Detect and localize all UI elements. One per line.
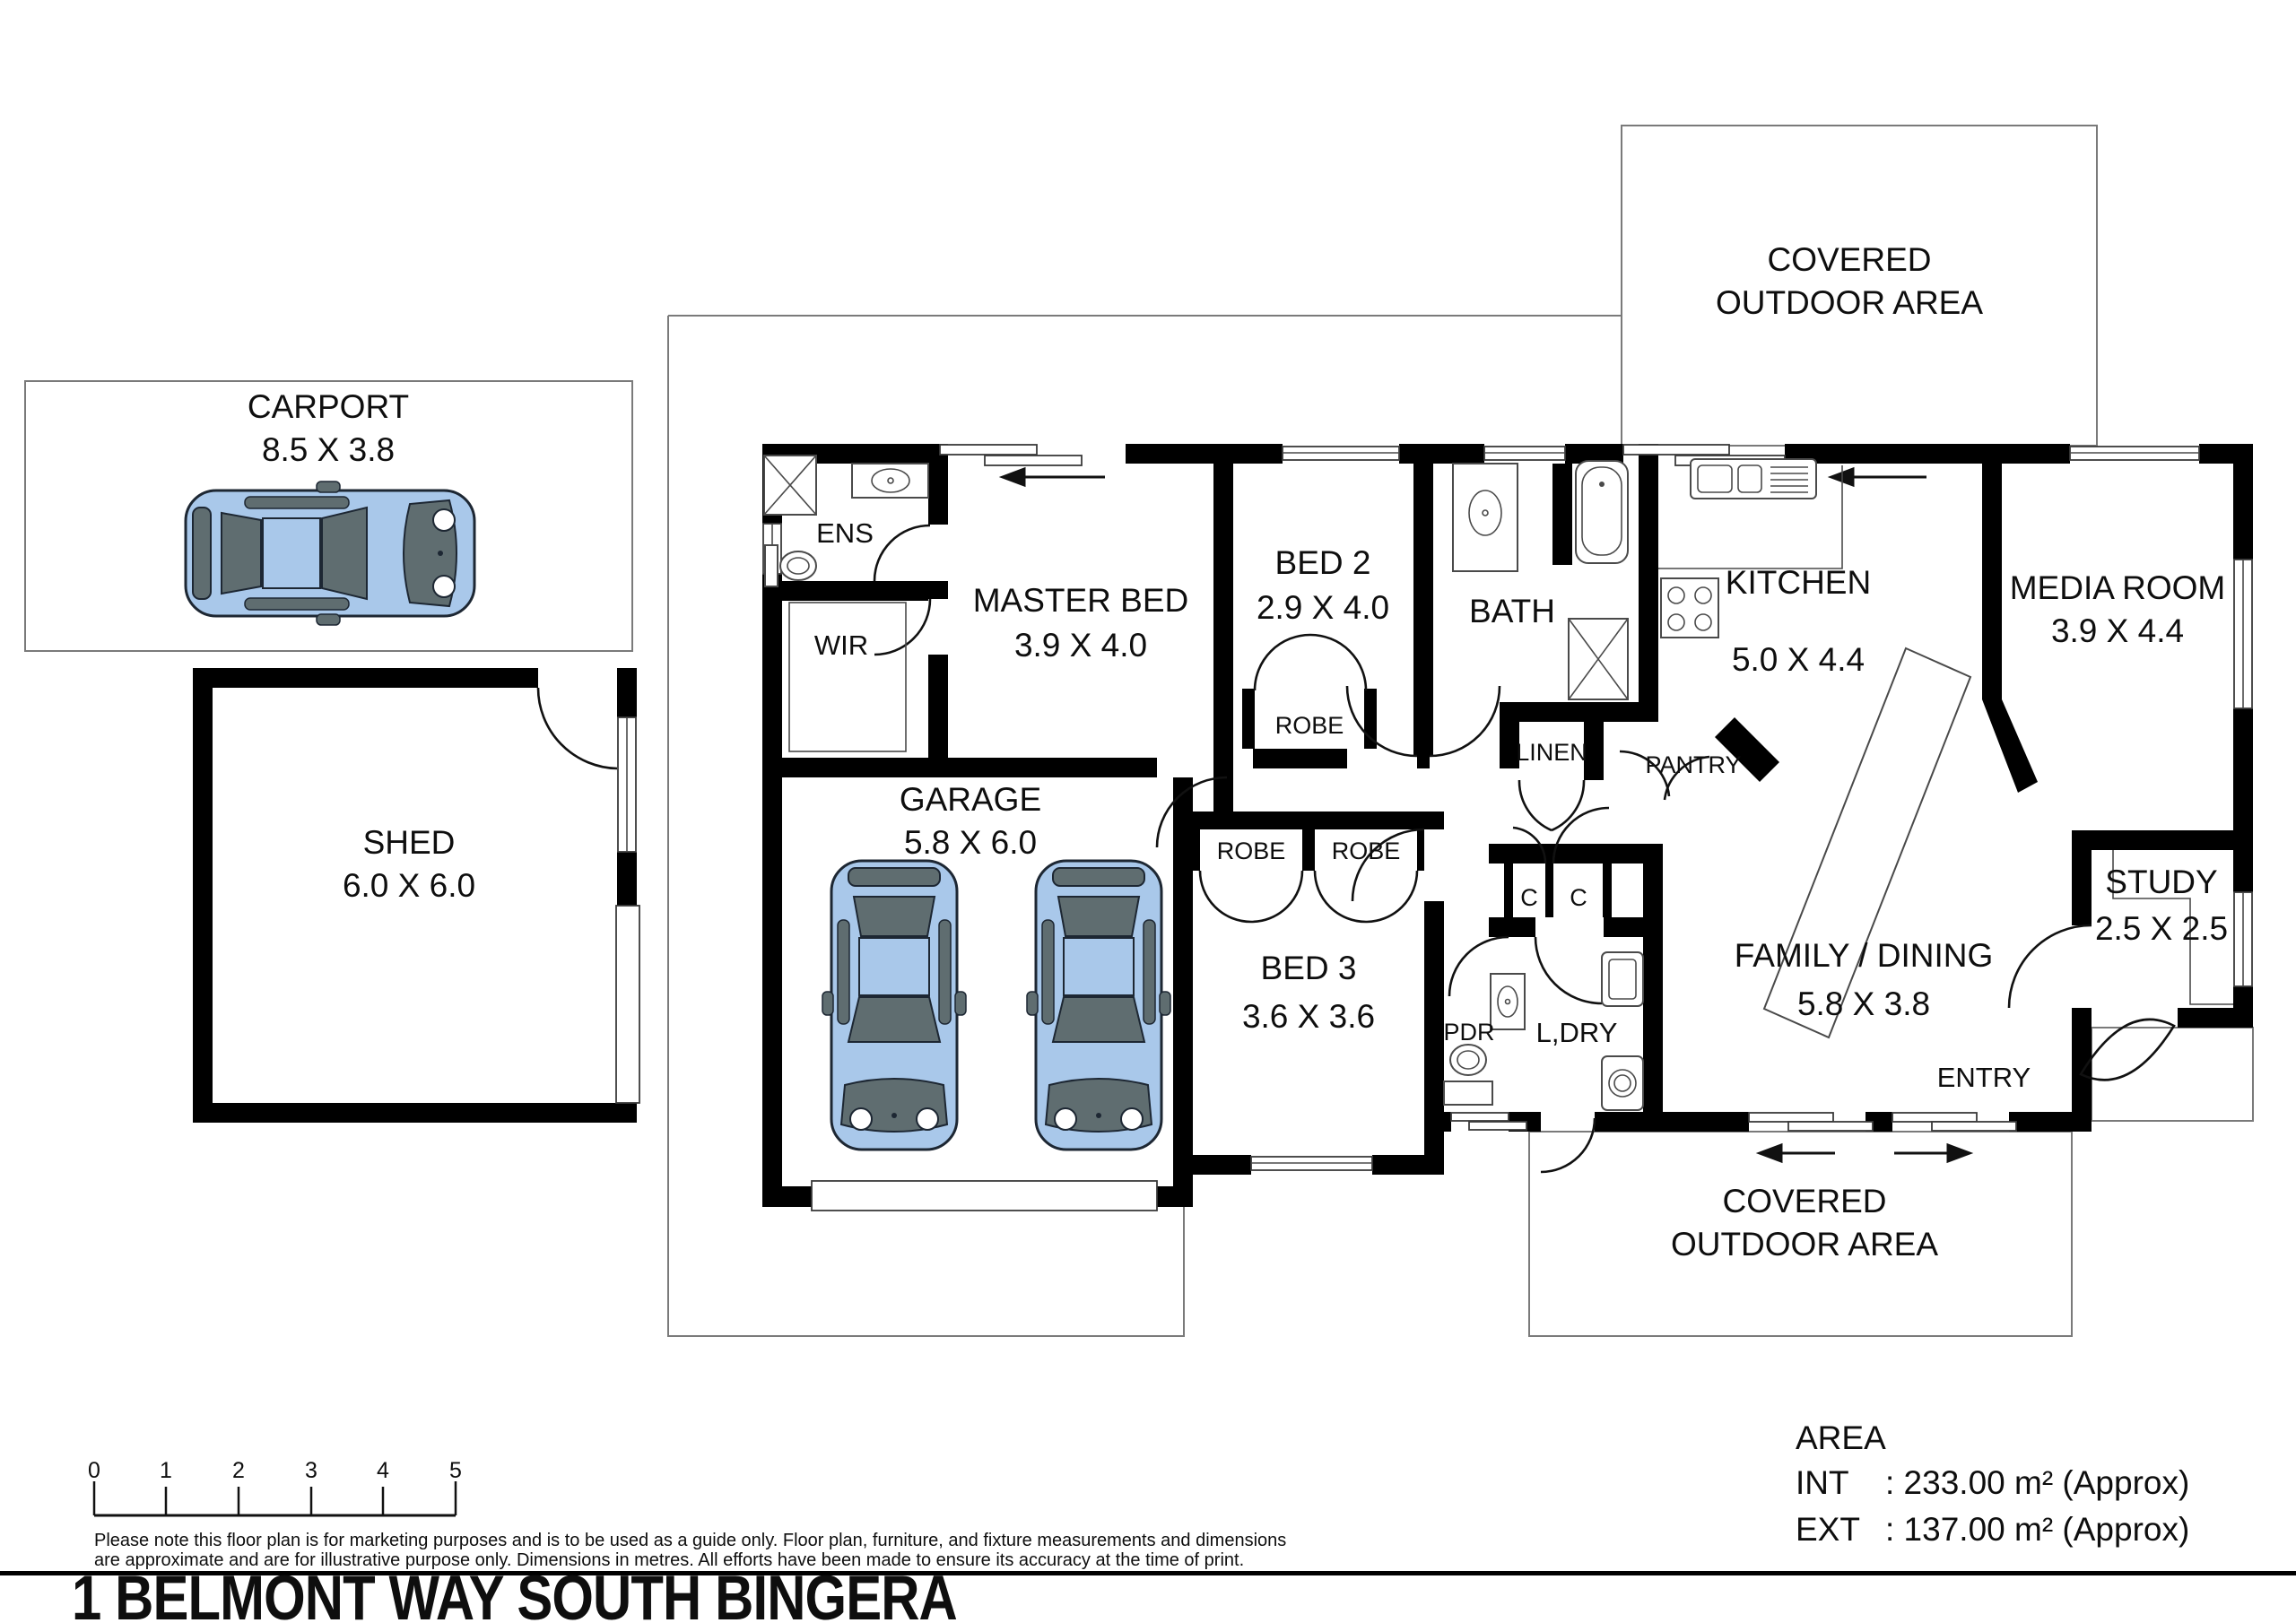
linen-door-arc <box>1519 780 1552 830</box>
robe2-label: ROBE <box>1332 838 1401 864</box>
laundry-label: L,DRY <box>1536 1017 1618 1048</box>
study-door-arc <box>2009 925 2092 1008</box>
ens-label: ENS <box>816 517 874 549</box>
bath-label: BATH <box>1469 593 1555 629</box>
address-title: 1 BELMONT WAY SOUTH BINGERA <box>72 1562 957 1623</box>
shed-label: SHED <box>363 824 456 861</box>
dryer-icon <box>1602 1056 1643 1110</box>
garage-label: GARAGE <box>900 781 1041 818</box>
area-ext-value: : 137.00 m² (Approx) <box>1885 1511 2189 1548</box>
bed2-window <box>1283 447 1399 460</box>
laundry-door-arc <box>1535 937 1602 1003</box>
pdr-toilet-icon <box>1444 1045 1492 1105</box>
wir-door-arc <box>874 599 930 655</box>
bed2-robe-door-arc <box>1255 635 1310 690</box>
family-sliding-door-left-arrow <box>1760 1145 1835 1161</box>
garage-door <box>812 1181 1157 1211</box>
media-top-window <box>2070 447 2199 460</box>
shed-sliding-door <box>616 906 639 1103</box>
media-right-window <box>2234 560 2252 708</box>
bed2-dims: 2.9 X 4.0 <box>1257 589 1389 626</box>
scale-tick-2: 2 <box>232 1458 245 1483</box>
wir-label: WIR <box>814 629 868 661</box>
pantry-label: PANTRY <box>1645 751 1741 778</box>
area-heading: AREA <box>1796 1419 1886 1456</box>
floor-plan-page: CARPORT 8.5 X 3.8 SHED 6.0 X 6.0 GARAGE … <box>0 0 2296 1623</box>
entry-label: ENTRY <box>1937 1062 2031 1093</box>
scale-tick-3: 3 <box>305 1458 317 1483</box>
family-sliding-door-right <box>1892 1113 2016 1131</box>
master-window-arrow <box>1003 469 1105 485</box>
bed2-robe-label: ROBE <box>1275 712 1344 739</box>
bed2-door-arc <box>1347 686 1417 756</box>
family-dining-dims: 5.8 X 3.8 <box>1797 985 1930 1022</box>
carport-car <box>186 482 474 625</box>
covered-top-label-line2: OUTDOOR AREA <box>1716 284 1983 321</box>
bed2-label: BED 2 <box>1275 544 1371 581</box>
area-summary: AREA INT : 233.00 m² (Approx) EXT : 137.… <box>1796 1419 2189 1548</box>
bed3-window <box>1251 1157 1372 1170</box>
ens-sink-icon <box>852 464 928 498</box>
linen-door-arc <box>1552 780 1584 830</box>
disclaimer-line1: Please note this floor plan is for marke… <box>94 1531 1286 1550</box>
ens-toilet-icon <box>765 545 816 586</box>
scale-tick-0: 0 <box>88 1458 100 1483</box>
study-label: STUDY <box>2105 864 2217 900</box>
media-room-dims: 3.9 X 4.4 <box>2051 612 2184 649</box>
robe2-door-arc <box>1315 871 1366 922</box>
pdr-label: PDR <box>1443 1019 1494 1046</box>
floor-plan-canvas: CARPORT 8.5 X 3.8 SHED 6.0 X 6.0 GARAGE … <box>0 0 2296 1623</box>
address-title-group: 1 BELMONT WAY SOUTH BINGERA <box>72 1562 957 1623</box>
robe1-door-arc <box>1251 871 1302 922</box>
shed-dims: 6.0 X 6.0 <box>343 867 475 904</box>
shed-door-arc <box>538 688 617 768</box>
carport-label: CARPORT <box>248 388 409 425</box>
robe2-door-arc <box>1366 871 1417 922</box>
bed2-robe-door-arc <box>1310 635 1366 690</box>
bed3-dims: 3.6 X 3.6 <box>1242 998 1375 1035</box>
scale-tick-5: 5 <box>449 1458 462 1483</box>
kitchen-window-arrow <box>1831 469 1926 485</box>
scale-tick-1: 1 <box>160 1458 172 1483</box>
robe1-door-arc <box>1200 871 1251 922</box>
kitchen-sink-icon <box>1691 459 1816 499</box>
laundry-exterior-door-arc <box>1541 1118 1595 1172</box>
area-int-label: INT <box>1796 1464 1849 1501</box>
bath-vanity-icon <box>1453 464 1518 571</box>
bath-window <box>1484 447 1565 460</box>
bath-door-arc <box>1430 686 1500 756</box>
wir-shelving <box>789 603 906 751</box>
kitchen-label: KITCHEN <box>1726 564 1871 601</box>
area-ext-label: EXT <box>1796 1511 1860 1548</box>
study-dims: 2.5 X 2.5 <box>2095 910 2228 947</box>
family-dining-label: FAMILY / DINING <box>1735 937 1994 974</box>
kitchen-dims: 5.0 X 4.4 <box>1732 641 1865 678</box>
ens-door-arc <box>874 525 930 581</box>
cooktop-icon <box>1661 578 1718 638</box>
kitchen-island-bench <box>1764 648 1970 1037</box>
bath-cabinet-icon <box>1569 619 1628 699</box>
master-bed-label: MASTER BED <box>973 582 1189 619</box>
scale-bar: 0 1 2 3 4 5 <box>88 1458 462 1515</box>
covered-bottom-label-line1: COVERED <box>1723 1183 1887 1219</box>
robe1-label: ROBE <box>1217 838 1286 864</box>
entry-porch-outline <box>2092 1028 2253 1121</box>
linen-label: LINEN <box>1516 739 1587 766</box>
garage-car-1 <box>822 861 966 1150</box>
media-room-label: MEDIA ROOM <box>2010 569 2226 606</box>
bed3-label: BED 3 <box>1261 950 1357 986</box>
cupboard1-label: C <box>1520 884 1538 911</box>
garage-car-2 <box>1027 861 1170 1150</box>
washing-machine-icon <box>1602 952 1643 1006</box>
bathtub-icon <box>1576 461 1628 563</box>
covered-bottom-label-line2: OUTDOOR AREA <box>1671 1226 1938 1263</box>
master-bed-dims: 3.9 X 4.0 <box>1014 627 1147 664</box>
area-int-value: : 233.00 m² (Approx) <box>1885 1464 2189 1501</box>
shed-window <box>618 717 636 852</box>
master-window <box>940 445 1082 465</box>
cupboard2-label: C <box>1570 884 1587 911</box>
carport-dims: 8.5 X 3.8 <box>262 431 395 468</box>
scale-tick-4: 4 <box>377 1458 389 1483</box>
shower-icon <box>764 456 816 515</box>
family-sliding-door-right-arrow <box>1894 1145 1970 1161</box>
family-sliding-door-left <box>1749 1113 1873 1131</box>
garage-dims: 5.8 X 6.0 <box>904 824 1037 861</box>
pdr-vanity-icon <box>1491 974 1525 1029</box>
covered-top-label-line1: COVERED <box>1768 241 1932 278</box>
fixtures <box>186 456 2233 1150</box>
study-right-window <box>2234 892 2252 986</box>
